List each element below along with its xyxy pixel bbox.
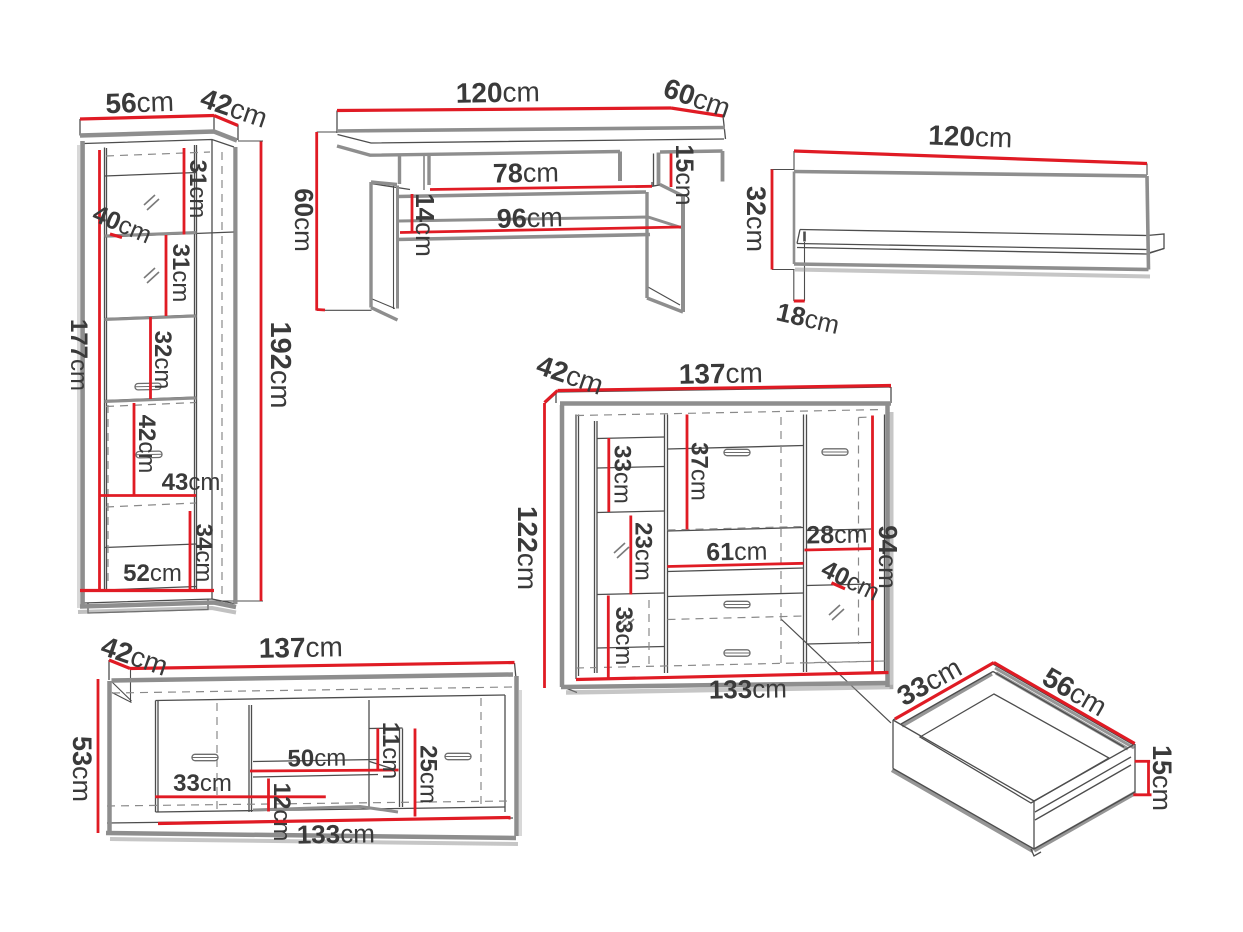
- svg-text:56cm: 56cm: [105, 86, 175, 119]
- svg-text:18cm: 18cm: [774, 296, 843, 340]
- svg-text:28cm: 28cm: [806, 520, 868, 549]
- svg-text:37cm: 37cm: [686, 442, 713, 501]
- svg-text:12cm: 12cm: [268, 783, 295, 842]
- svg-text:133cm: 133cm: [709, 673, 788, 704]
- svg-text:42cm: 42cm: [533, 349, 608, 401]
- svg-text:192cm: 192cm: [264, 321, 296, 408]
- svg-text:177cm: 177cm: [65, 319, 92, 391]
- svg-text:11cm: 11cm: [377, 722, 404, 779]
- svg-text:137cm: 137cm: [679, 357, 764, 389]
- svg-text:120cm: 120cm: [456, 76, 541, 108]
- svg-text:14cm: 14cm: [410, 193, 440, 257]
- svg-text:60cm: 60cm: [289, 188, 319, 252]
- svg-text:32cm: 32cm: [149, 331, 176, 390]
- svg-text:23cm: 23cm: [630, 522, 657, 581]
- svg-text:42cm: 42cm: [197, 82, 272, 134]
- svg-text:60cm: 60cm: [660, 72, 735, 124]
- svg-text:133cm: 133cm: [297, 818, 376, 849]
- svg-text:122cm: 122cm: [512, 506, 543, 590]
- svg-text:53cm: 53cm: [67, 736, 97, 802]
- svg-text:50cm: 50cm: [287, 744, 346, 772]
- svg-text:52cm: 52cm: [123, 560, 182, 587]
- svg-text:31cm: 31cm: [167, 244, 194, 303]
- svg-text:42cm: 42cm: [133, 415, 160, 474]
- svg-text:34cm: 34cm: [190, 524, 217, 583]
- svg-text:43cm: 43cm: [162, 469, 221, 496]
- svg-text:15cm: 15cm: [1147, 745, 1177, 811]
- svg-text:33cm: 33cm: [892, 652, 967, 712]
- svg-text:31cm: 31cm: [184, 160, 211, 219]
- svg-text:32cm: 32cm: [741, 186, 771, 252]
- svg-text:96cm: 96cm: [496, 202, 563, 234]
- svg-text:25cm: 25cm: [415, 745, 442, 804]
- svg-text:61cm: 61cm: [706, 537, 768, 566]
- svg-text:15cm: 15cm: [670, 144, 698, 205]
- svg-text:120cm: 120cm: [928, 120, 1013, 154]
- svg-text:78cm: 78cm: [493, 157, 560, 188]
- svg-text:137cm: 137cm: [259, 631, 344, 663]
- svg-text:33cm: 33cm: [173, 770, 232, 797]
- svg-text:33cm: 33cm: [609, 445, 636, 504]
- svg-text:33cm: 33cm: [610, 607, 637, 666]
